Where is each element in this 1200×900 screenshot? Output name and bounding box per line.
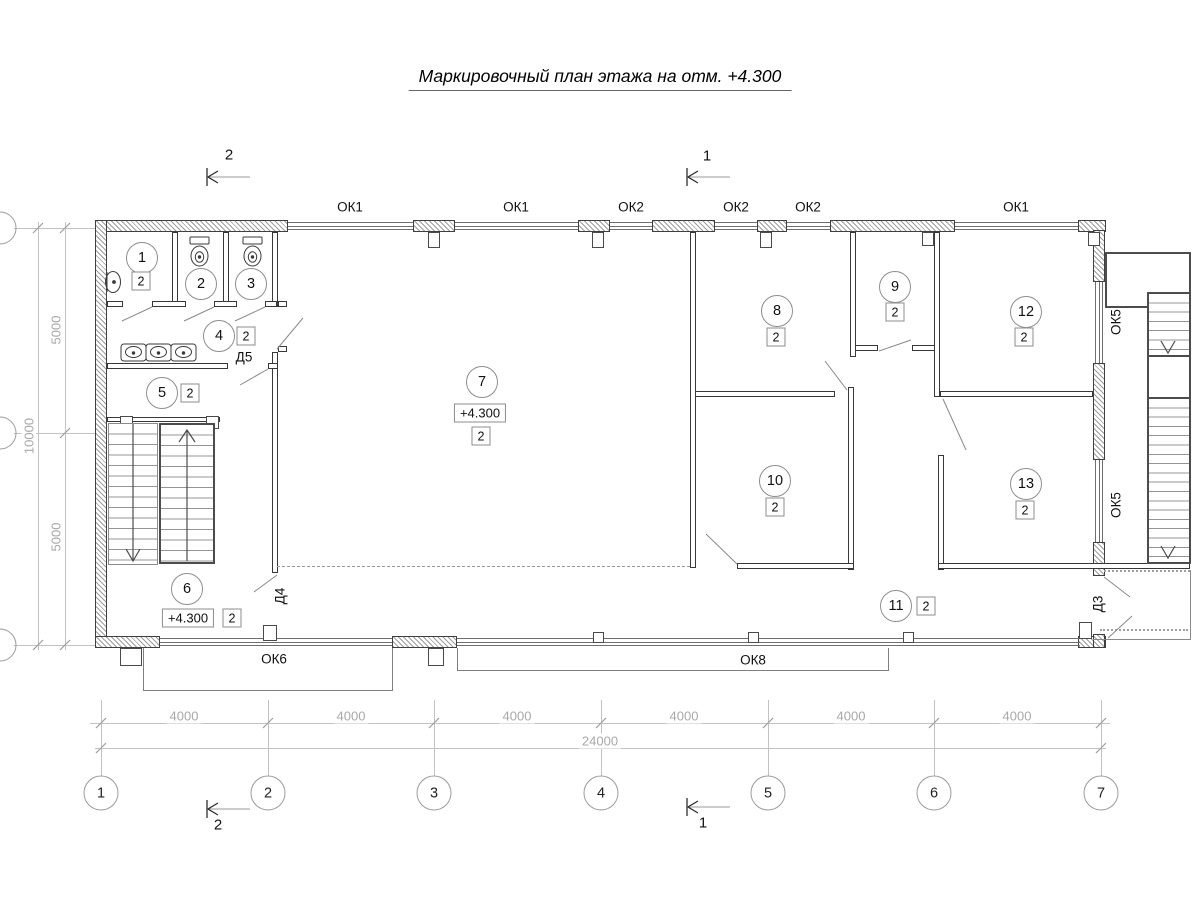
window-label-ok2: ОК2 bbox=[618, 200, 644, 215]
stair-flight-up bbox=[159, 423, 215, 564]
wall-interior bbox=[107, 301, 123, 307]
canopy-outline bbox=[143, 648, 144, 691]
wall-interior bbox=[850, 232, 856, 357]
wall-interior bbox=[934, 232, 940, 397]
axis-line bbox=[434, 700, 435, 777]
dimension-line bbox=[90, 723, 1110, 724]
dimension-span: 4000 bbox=[500, 709, 535, 724]
room-number-circle: 13 bbox=[1010, 468, 1042, 500]
window-band-ok1 bbox=[955, 222, 1078, 230]
wall-exterior-top bbox=[830, 220, 955, 232]
axis-circle-7: 7 bbox=[1084, 776, 1119, 811]
exterior-stair-landing bbox=[1147, 355, 1191, 399]
section-arrows bbox=[207, 168, 730, 818]
axis-line bbox=[768, 700, 769, 777]
column-mark bbox=[592, 232, 604, 248]
exterior-stair-flight bbox=[1147, 397, 1191, 564]
wall-interior bbox=[214, 301, 237, 307]
window-band-ok2 bbox=[787, 222, 830, 230]
axis-line bbox=[268, 700, 269, 777]
door-leaf-d3 bbox=[1079, 622, 1092, 639]
column-mark bbox=[120, 648, 142, 666]
axis-line bbox=[14, 645, 95, 646]
axis-line bbox=[14, 228, 95, 229]
wall-interior-stub bbox=[278, 346, 287, 352]
wall-exterior-top bbox=[413, 220, 455, 232]
column-mark bbox=[428, 232, 440, 248]
wall-exterior-bottom bbox=[95, 636, 160, 648]
window-label-ok5: ОК5 bbox=[1109, 492, 1124, 518]
canopy-outline bbox=[457, 648, 458, 671]
wall-interior bbox=[737, 563, 854, 569]
canopy-outline bbox=[457, 670, 889, 671]
wall-interior-stub bbox=[278, 301, 287, 307]
room-number-circle: 1 bbox=[126, 242, 158, 274]
room-type-box: 2 bbox=[237, 327, 256, 346]
wall-exterior-top bbox=[95, 220, 288, 232]
room-type-box: 2 bbox=[766, 498, 785, 517]
column-mark bbox=[748, 632, 759, 643]
wall-interior bbox=[152, 301, 186, 307]
wall-interior bbox=[268, 363, 278, 369]
wall-exterior-bottom bbox=[392, 636, 457, 648]
axis-circle-6: 6 bbox=[917, 776, 952, 811]
toilet-icon bbox=[243, 237, 262, 266]
wall-interior bbox=[848, 387, 854, 570]
canopy-outline bbox=[888, 648, 889, 671]
sink-icon bbox=[121, 344, 146, 361]
elevation-mark: +4.300 bbox=[162, 609, 214, 628]
room-type-box: 2 bbox=[886, 303, 905, 322]
column-mark bbox=[760, 232, 772, 248]
wall-interior bbox=[272, 232, 278, 307]
room-type-box: 2 bbox=[223, 609, 242, 628]
dimension-span: 4000 bbox=[1000, 709, 1035, 724]
wall-interior bbox=[223, 232, 229, 307]
room-type-box: 2 bbox=[767, 328, 786, 347]
section-mark-label: 1 bbox=[699, 815, 707, 832]
sink-icon bbox=[171, 344, 196, 361]
room-type-box: 2 bbox=[1016, 501, 1035, 520]
stair-arrows bbox=[126, 341, 1175, 561]
section-mark-label: 2 bbox=[225, 147, 233, 164]
window-label-ok5: ОК5 bbox=[1109, 309, 1124, 335]
window-label-ok1: ОК1 bbox=[1003, 200, 1029, 215]
room-number-circle: 3 bbox=[235, 268, 267, 300]
window-label-ok2: ОК2 bbox=[723, 200, 749, 215]
window-band-ok1 bbox=[455, 222, 578, 230]
wall-exterior-top bbox=[652, 220, 715, 232]
room-number-circle: 11 bbox=[880, 590, 912, 622]
axis-line bbox=[1101, 700, 1102, 777]
window-band-ok8 bbox=[457, 638, 1080, 646]
axis-circle-3: 3 bbox=[417, 776, 452, 811]
section-mark-label: 2 bbox=[214, 817, 222, 834]
column-mark bbox=[428, 648, 444, 666]
room-open-boundary-dashed bbox=[277, 566, 690, 567]
dimension-span-vertical: 5000 bbox=[49, 313, 64, 348]
column-mark bbox=[922, 232, 934, 246]
axis-circle-2: 2 bbox=[251, 776, 286, 811]
room-number-circle: 2 bbox=[185, 268, 217, 300]
drawing-title: Маркировочный план этажа на отм. +4.300 bbox=[409, 66, 792, 91]
column-mark bbox=[1088, 232, 1100, 246]
room-type-box: 2 bbox=[1015, 328, 1034, 347]
room-type-box: 2 bbox=[181, 384, 200, 403]
wall-interior bbox=[265, 301, 277, 307]
wall-interior bbox=[172, 232, 178, 307]
dimension-total-vertical: 10000 bbox=[22, 415, 37, 457]
room-number-circle: 4 bbox=[203, 320, 235, 352]
wall-interior bbox=[107, 363, 228, 369]
toilet-icon bbox=[190, 237, 209, 266]
window-band-ok2 bbox=[610, 222, 652, 230]
section-mark-label: 1 bbox=[703, 148, 711, 165]
canopy-outline bbox=[143, 690, 393, 691]
column-mark bbox=[593, 632, 604, 643]
wall-interior bbox=[938, 455, 944, 570]
window-band-ok1 bbox=[288, 222, 413, 230]
window-label-ok8: ОК8 bbox=[740, 653, 766, 668]
terrace-railing-dots bbox=[1100, 629, 1188, 631]
axis-line bbox=[934, 700, 935, 777]
canopy-outline bbox=[392, 648, 393, 691]
stair-flight-down bbox=[108, 423, 158, 565]
window-band-ok2 bbox=[715, 222, 757, 230]
dimension-span: 4000 bbox=[667, 709, 702, 724]
floor-plan-drawing: Маркировочный план этажа на отм. +4.300 bbox=[0, 0, 1200, 900]
dimension-span-vertical: 5000 bbox=[49, 520, 64, 555]
window-label-ok6: ОК6 bbox=[261, 652, 287, 667]
door-label-d5: Д5 bbox=[236, 350, 253, 365]
door-leaf-d4 bbox=[263, 625, 277, 641]
wall-interior bbox=[695, 391, 835, 397]
dimension-total: 24000 bbox=[579, 734, 621, 749]
room-type-box: 2 bbox=[132, 272, 151, 291]
window-band-ok5 bbox=[1095, 282, 1103, 363]
room-number-circle: 7 bbox=[466, 366, 498, 398]
room-number-circle: 10 bbox=[759, 465, 791, 497]
room-number-circle: 6 bbox=[171, 573, 203, 605]
axis-circle-5: 5 bbox=[751, 776, 786, 811]
wall-exterior-left bbox=[95, 220, 107, 648]
axis-line bbox=[101, 700, 102, 777]
wall-interior-stub bbox=[912, 345, 935, 351]
sink-icon bbox=[146, 344, 171, 361]
window-label-ok2: ОК2 bbox=[795, 200, 821, 215]
wall-interior-stub bbox=[855, 345, 878, 351]
window-label-ok1: ОК1 bbox=[337, 200, 363, 215]
wall-exterior-top bbox=[757, 220, 787, 232]
exterior-stair-flight bbox=[1147, 292, 1191, 357]
room-number-circle: 8 bbox=[761, 295, 793, 327]
dimension-span: 4000 bbox=[167, 709, 202, 724]
room-type-box: 2 bbox=[472, 427, 491, 446]
wall-interior bbox=[690, 232, 696, 568]
elevation-mark: +4.300 bbox=[454, 404, 506, 423]
door-label-d4: Д4 bbox=[273, 588, 288, 605]
wall-interior bbox=[272, 352, 278, 573]
axis-circle-1: 1 bbox=[84, 776, 119, 811]
wall-exterior-right bbox=[1093, 363, 1105, 460]
axis-circle-partial bbox=[0, 212, 16, 661]
door-label-d3: Д3 bbox=[1091, 596, 1106, 613]
room-type-box: 2 bbox=[917, 597, 936, 616]
urinal-icon bbox=[106, 272, 121, 293]
room-number-circle: 5 bbox=[146, 377, 178, 409]
dimension-line bbox=[65, 222, 66, 650]
wall-interior bbox=[940, 391, 1093, 397]
axis-circle-4: 4 bbox=[584, 776, 619, 811]
wall-exterior-top bbox=[578, 220, 610, 232]
column-mark bbox=[903, 632, 914, 643]
room-number-circle: 9 bbox=[879, 271, 911, 303]
window-band-ok5 bbox=[1095, 460, 1103, 542]
dimension-span: 4000 bbox=[834, 709, 869, 724]
dimension-span: 4000 bbox=[334, 709, 369, 724]
terrace-railing-dots bbox=[1104, 570, 1190, 572]
window-label-ok1: ОК1 bbox=[503, 200, 529, 215]
dimension-line bbox=[38, 222, 39, 650]
room-number-circle: 12 bbox=[1010, 296, 1042, 328]
